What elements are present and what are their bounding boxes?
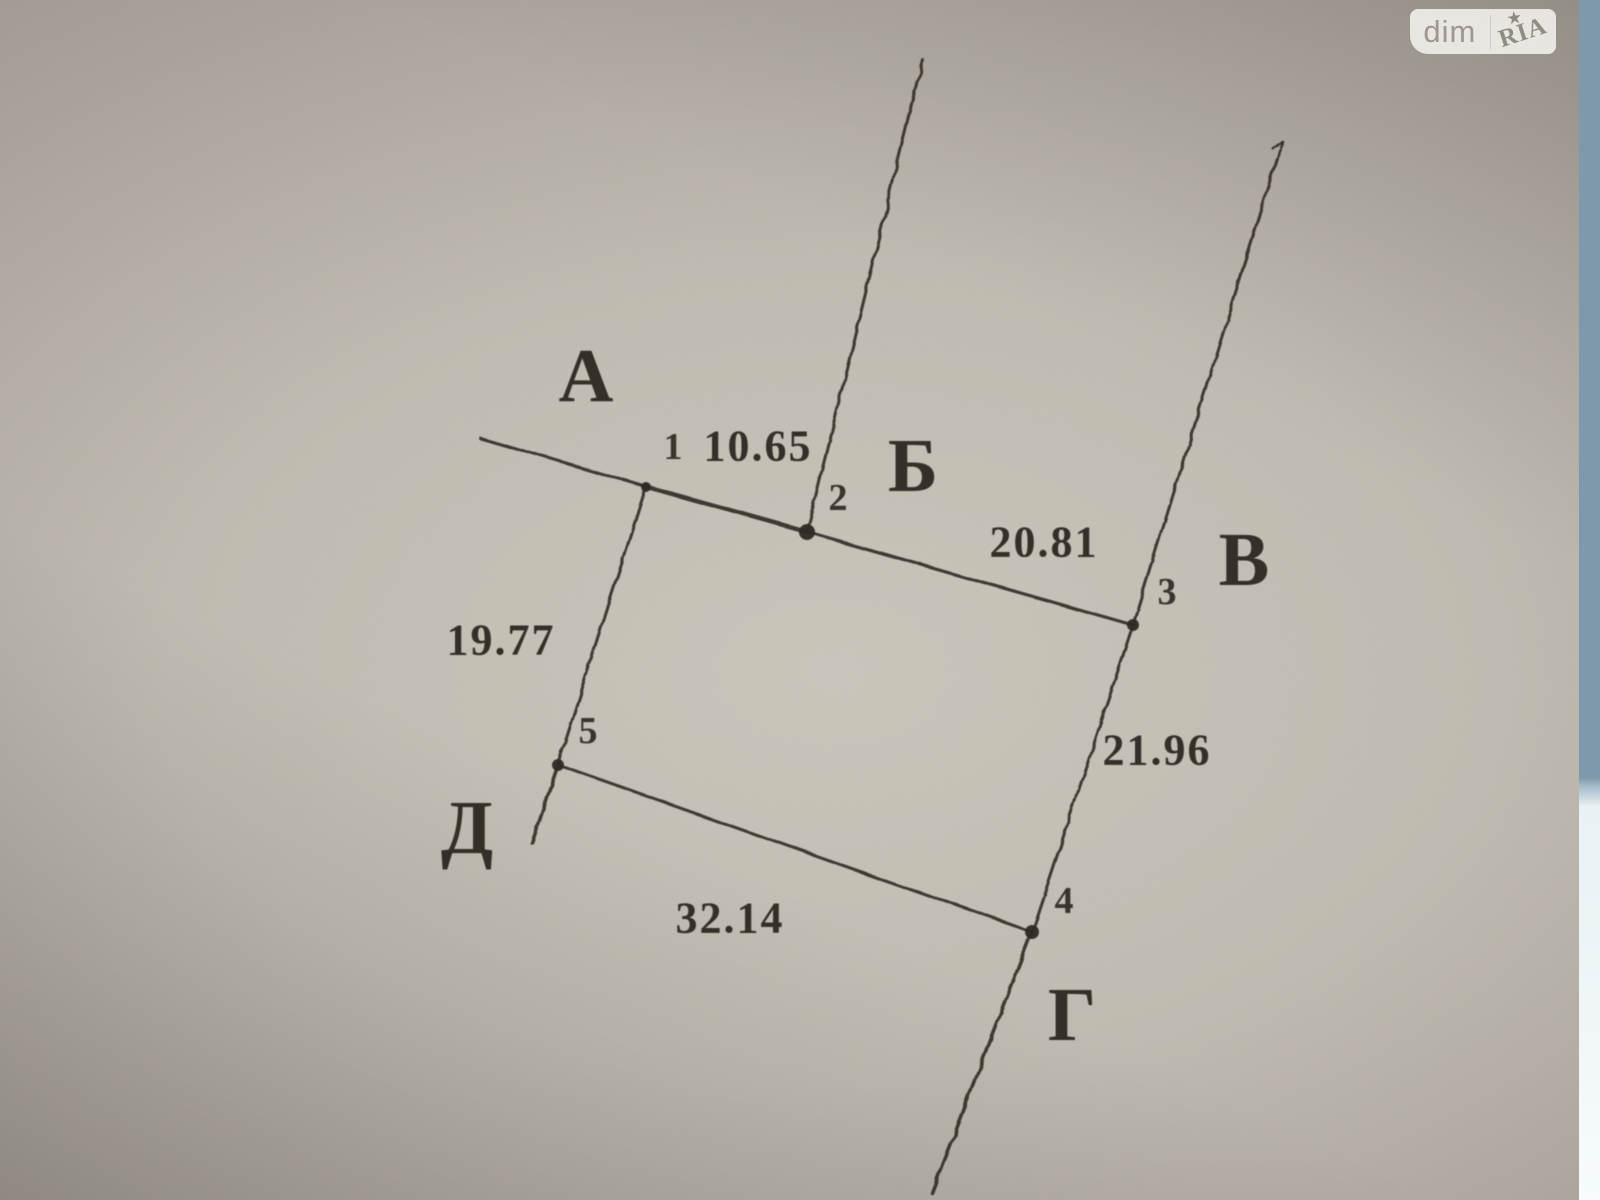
point-number-5: 5: [579, 710, 598, 752]
distance-label-19.77: 19.77: [447, 616, 556, 665]
watermark-ria-logo: ★ RIA: [1491, 9, 1556, 54]
photo-grain-texture: [0, 0, 1600, 1200]
point-number-3: 3: [1158, 571, 1177, 613]
boundary-letter-Г: Г: [1048, 973, 1096, 1057]
screenshot-stage: 1234510.6520.8119.7721.9632.14АБВГД dim …: [0, 0, 1600, 1200]
point-number-1: 1: [664, 426, 683, 468]
boundary-letter-В: В: [1219, 518, 1270, 602]
distance-label-10.65: 10.65: [704, 422, 813, 471]
vertex-dot-5: [552, 759, 564, 771]
distance-label-21.96: 21.96: [1103, 726, 1212, 775]
distance-label-32.14: 32.14: [676, 894, 785, 943]
boundary-letter-А: А: [559, 334, 614, 418]
ria-star-icon: ★: [1507, 8, 1524, 29]
boundary-letter-Д: Д: [441, 786, 493, 870]
watermark-ria-label: RIA: [1496, 12, 1551, 53]
boundary-letter-Б: Б: [888, 424, 938, 508]
distance-label-20.81: 20.81: [990, 518, 1099, 567]
point-number-4: 4: [1055, 880, 1074, 922]
page-edge-strip: [1579, 0, 1600, 1200]
vertex-dot-4: [1025, 925, 1039, 939]
watermark-dim-label: dim: [1410, 14, 1490, 50]
vertex-dot-2: [799, 524, 815, 540]
dim-ria-watermark-badge: dim ★ RIA: [1410, 9, 1556, 54]
vertex-dot-1: [641, 482, 651, 492]
vertex-dot-3: [1127, 619, 1139, 631]
plot-diagram: 1234510.6520.8119.7721.9632.14АБВГД: [0, 0, 1600, 1200]
point-number-2: 2: [829, 477, 848, 519]
